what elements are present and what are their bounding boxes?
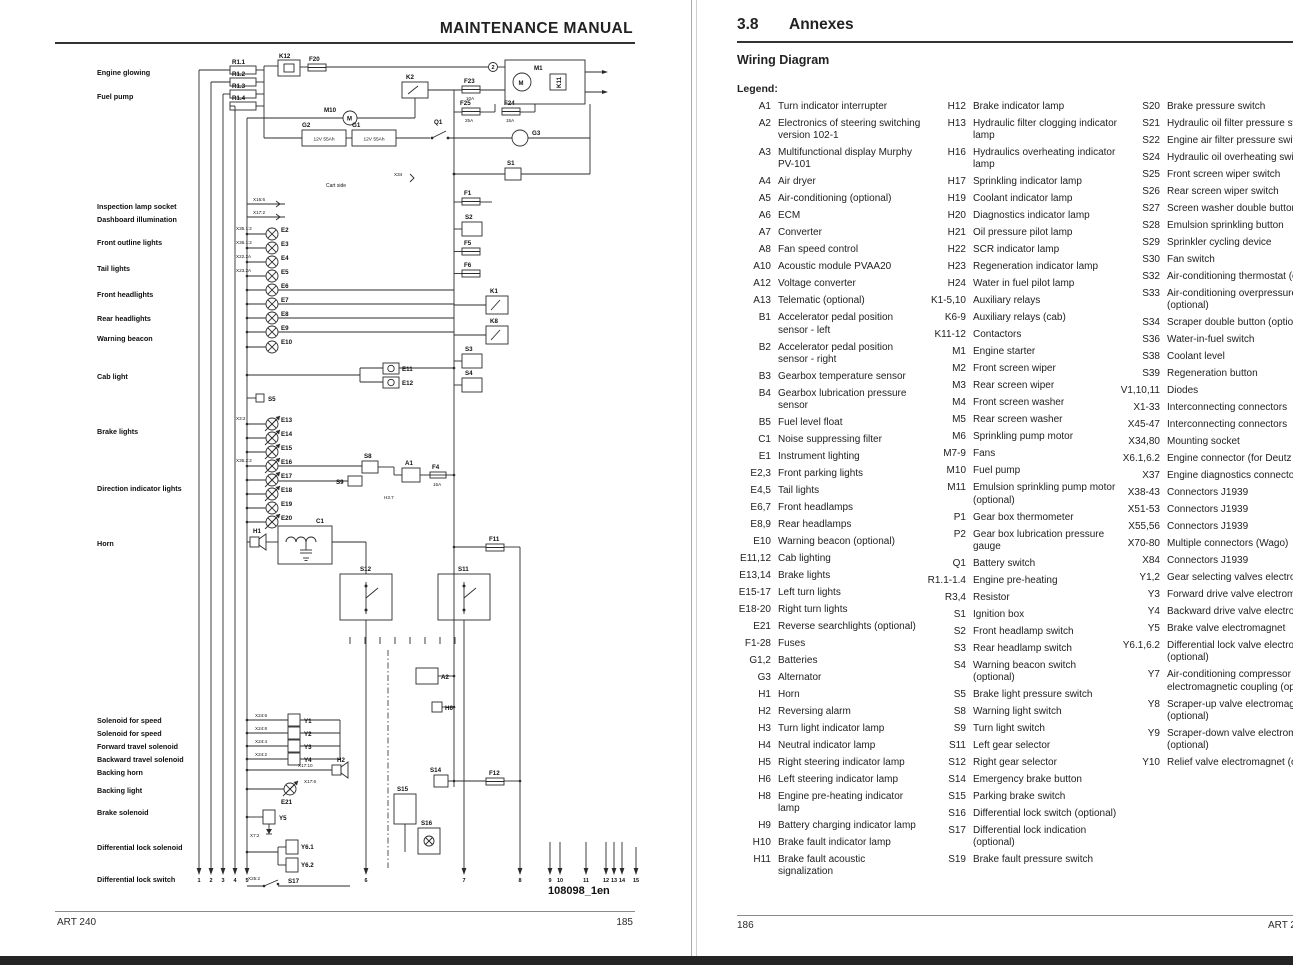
legend-key: E18-20 — [737, 604, 771, 616]
legend-key: H9 — [737, 820, 771, 832]
legend-entry: E10 Warning beacon (optional) — [737, 536, 921, 548]
legend-key: E1 — [737, 451, 771, 463]
diagram-side-labels: Engine glowing Fuel pump Inspection lamp… — [97, 68, 184, 884]
legend-desc: Front parking lights — [778, 468, 921, 480]
svg-text:X24:4: X24:4 — [255, 739, 267, 744]
legend-entry: S33 Air-conditioning overpressure fuse (… — [1120, 288, 1293, 312]
legend-desc: Air dryer — [778, 176, 921, 188]
svg-text:A1: A1 — [405, 460, 413, 467]
legend-entry: S4 Warning beacon switch (optional) — [926, 660, 1118, 684]
legend-entry: A8 Fan speed control — [737, 244, 921, 256]
svg-text:13: 13 — [611, 878, 617, 884]
legend-key: S16 — [926, 808, 966, 820]
legend-desc: Mounting socket — [1167, 436, 1293, 448]
legend-entry: S8 Warning light switch — [926, 706, 1118, 718]
legend-key: H24 — [926, 278, 966, 290]
legend-desc: Batteries — [778, 655, 921, 667]
legend-key: X34,80 — [1120, 436, 1160, 448]
legend-key: H20 — [926, 210, 966, 222]
legend-entry: X37 Engine diagnostics connector — [1120, 470, 1293, 482]
legend-entry: C1 Noise suppressing filter — [737, 434, 921, 446]
svg-text:R1.1: R1.1 — [232, 59, 246, 66]
legend-desc: Connectors J1939 — [1167, 521, 1293, 533]
legend-key: A13 — [737, 295, 771, 307]
legend-key: G3 — [737, 672, 771, 684]
legend-entry: X55,56 Connectors J1939 — [1120, 521, 1293, 533]
svg-text:C1: C1 — [316, 518, 324, 525]
svg-text:M1: M1 — [534, 65, 543, 72]
legend-column-2: H12 Brake indicator lamp H13 Hydraulic f… — [926, 101, 1118, 871]
legend-desc: Front screen washer — [973, 397, 1118, 409]
legend-desc: Connectors J1939 — [1167, 555, 1293, 567]
legend-desc: Rear screen wiper — [973, 380, 1118, 392]
legend-desc: Differential lock valve electromagnets (… — [1167, 640, 1293, 664]
legend-key: H2 — [737, 706, 771, 718]
legend-entry: A1 Turn indicator interrupter — [737, 101, 921, 113]
legend-entry: H11 Brake fault acoustic signalization — [737, 854, 921, 878]
legend-entry: S21 Hydraulic oil filter pressure switch — [1120, 118, 1293, 130]
legend-entry: Y6.1,6.2 Differential lock valve electro… — [1120, 640, 1293, 664]
legend-desc: Accelerator pedal position sensor - left — [778, 312, 921, 336]
legend-key: H10 — [737, 837, 771, 849]
svg-text:Backing horn: Backing horn — [97, 768, 143, 777]
legend-desc: Hydraulic oil filter pressure switch — [1167, 118, 1293, 130]
svg-text:Front headlights: Front headlights — [97, 290, 153, 299]
legend-desc: Screen washer double button — [1167, 203, 1293, 215]
diagram-ref-number: 108098_1en — [548, 885, 610, 897]
svg-text:25A: 25A — [465, 118, 474, 123]
page-number: 186 — [737, 920, 754, 931]
legend-desc: SCR indicator lamp — [973, 244, 1118, 256]
page-gutter-line-2 — [696, 0, 697, 956]
legend-entry: M2 Front screen wiper — [926, 363, 1118, 375]
legend-key: H11 — [737, 854, 771, 878]
svg-text:E19: E19 — [281, 501, 293, 508]
legend-entry: S19 Brake fault pressure switch — [926, 854, 1118, 866]
legend-key: H22 — [926, 244, 966, 256]
legend-entry: M6 Sprinkling pump motor — [926, 431, 1118, 443]
legend-entry: H21 Oil pressure pilot lamp — [926, 227, 1118, 239]
legend-entry: H10 Brake fault indicator lamp — [737, 837, 921, 849]
svg-text:E21: E21 — [281, 799, 293, 806]
legend-entry: S28 Emulsion sprinkling button — [1120, 220, 1293, 232]
legend-key: A5 — [737, 193, 771, 205]
legend-desc: Reverse searchlights (optional) — [778, 621, 921, 633]
legend-desc: Fan speed control — [778, 244, 921, 256]
legend-key: E6,7 — [737, 502, 771, 514]
starter-M1: M M1 K11 — [505, 60, 608, 104]
svg-text:7: 7 — [462, 878, 465, 884]
legend-entry: H13 Hydraulic filter clogging indicator … — [926, 118, 1118, 142]
legend-entry: S20 Brake pressure switch — [1120, 101, 1293, 113]
legend-entry: S12 Right gear selector — [926, 757, 1118, 769]
svg-text:11: 11 — [583, 878, 589, 884]
legend-key: E21 — [737, 621, 771, 633]
legend-desc: Gear selecting valves electromagnets — [1167, 572, 1293, 584]
svg-text:2: 2 — [209, 878, 212, 884]
legend-key: H8 — [737, 791, 771, 815]
legend-entry: S15 Parking brake switch — [926, 791, 1118, 803]
svg-text:X7:2: X7:2 — [250, 833, 260, 838]
legend-key: S26 — [1120, 186, 1160, 198]
svg-text:5: 5 — [245, 878, 248, 884]
legend-key: S34 — [1120, 317, 1160, 329]
svg-text:E7: E7 — [281, 297, 289, 304]
legend-key: X1-33 — [1120, 402, 1160, 414]
legend-key: S19 — [926, 854, 966, 866]
legend-desc: Interconnecting connectors — [1167, 419, 1293, 431]
legend-desc: Brake fault indicator lamp — [778, 837, 921, 849]
legend-desc: Scraper-up valve electromagnet (optional… — [1167, 699, 1293, 723]
legend-desc: Interconnecting connectors — [1167, 402, 1293, 414]
legend-key: M6 — [926, 431, 966, 443]
legend-entry: H12 Brake indicator lamp — [926, 101, 1118, 113]
legend-entry: X1-33 Interconnecting connectors — [1120, 402, 1293, 414]
legend-desc: Telematic (optional) — [778, 295, 921, 307]
legend-key: X51-53 — [1120, 504, 1160, 516]
legend-key: M3 — [926, 380, 966, 392]
legend-entry: S5 Brake light pressure switch — [926, 689, 1118, 701]
svg-text:G2: G2 — [302, 122, 311, 129]
legend-key: B3 — [737, 371, 771, 383]
legend-desc: Sprinkling pump motor — [973, 431, 1118, 443]
legend-entry: X38-43 Connectors J1939 — [1120, 487, 1293, 499]
legend-desc: Water-in-fuel switch — [1167, 334, 1293, 346]
legend-key: S30 — [1120, 254, 1160, 266]
legend-entry: S27 Screen washer double button — [1120, 203, 1293, 215]
svg-text:F25: F25 — [460, 100, 471, 107]
legend-entry: S9 Turn light switch — [926, 723, 1118, 735]
legend-key: S27 — [1120, 203, 1160, 215]
svg-text:10: 10 — [557, 878, 563, 884]
legend-entry: S11 Left gear selector — [926, 740, 1118, 752]
legend-desc: Fan switch — [1167, 254, 1293, 266]
page-gutter-line — [691, 0, 692, 956]
svg-text:H3.7: H3.7 — [384, 495, 394, 500]
legend-key: S1 — [926, 609, 966, 621]
legend-key: H17 — [926, 176, 966, 188]
svg-text:G1: G1 — [352, 122, 361, 129]
legend-key: R1.1-1.4 — [926, 575, 966, 587]
legend-key: S14 — [926, 774, 966, 786]
legend-desc: Air-conditioning thermostat (optional) — [1167, 271, 1293, 283]
legend-desc: Fuses — [778, 638, 921, 650]
legend-entry: H24 Water in fuel pilot lamp — [926, 278, 1118, 290]
svg-text:K1: K1 — [490, 288, 498, 295]
legend-entry: H23 Regeneration indicator lamp — [926, 261, 1118, 273]
legend-key: S29 — [1120, 237, 1160, 249]
legend-key: H23 — [926, 261, 966, 273]
svg-text:S16: S16 — [421, 820, 433, 827]
legend-desc: Engine pre-heating — [973, 575, 1118, 587]
svg-text:E6: E6 — [281, 283, 289, 290]
legend-entry: S30 Fan switch — [1120, 254, 1293, 266]
svg-text:Front outline lights: Front outline lights — [97, 238, 162, 247]
legend-key: Y5 — [1120, 623, 1160, 635]
svg-text:E13: E13 — [281, 417, 293, 424]
legend-entry: X70-80 Multiple connectors (Wago) — [1120, 538, 1293, 550]
legend-entry: Y4 Backward drive valve electromagnet — [1120, 606, 1293, 618]
legend-entry: S14 Emergency brake button — [926, 774, 1118, 786]
legend-key: X38-43 — [1120, 487, 1160, 499]
svg-text:Backing light: Backing light — [97, 786, 143, 795]
svg-text:E11: E11 — [402, 366, 413, 373]
legend-desc: Brake fault acoustic signalization — [778, 854, 921, 878]
legend-desc: Air-conditioning compressor electromagne… — [1167, 669, 1293, 693]
legend-entry: M11 Emulsion sprinkling pump motor (opti… — [926, 482, 1118, 506]
svg-text:Horn: Horn — [97, 539, 114, 548]
legend-entry: A6 ECM — [737, 210, 921, 222]
legend-key: S12 — [926, 757, 966, 769]
legend-entry: S36 Water-in-fuel switch — [1120, 334, 1293, 346]
footer-rule — [737, 915, 1293, 916]
legend-desc: Emergency brake button — [973, 774, 1118, 786]
legend-desc: Parking brake switch — [973, 791, 1118, 803]
svg-text:E12: E12 — [402, 380, 414, 387]
legend-key: A1 — [737, 101, 771, 113]
legend-key: H6 — [737, 774, 771, 786]
svg-text:E15: E15 — [281, 445, 293, 452]
legend-key: S5 — [926, 689, 966, 701]
legend-desc: Engine air filter pressure switch — [1167, 135, 1293, 147]
legend-desc: Resistor — [973, 592, 1118, 604]
svg-text:Y6.1: Y6.1 — [301, 844, 314, 851]
legend-key: S25 — [1120, 169, 1160, 181]
legend-entry: X84 Connectors J1939 — [1120, 555, 1293, 567]
legend-entry: Y9 Scraper-down valve electromagnet (opt… — [1120, 728, 1293, 752]
legend-key: E8,9 — [737, 519, 771, 531]
svg-text:S1: S1 — [507, 160, 515, 167]
legend-desc: Battery switch — [973, 558, 1118, 570]
legend-entry: X45-47 Interconnecting connectors — [1120, 419, 1293, 431]
legend-desc: Electronics of steering switching versio… — [778, 118, 921, 142]
legend-key: Y10 — [1120, 757, 1160, 769]
legend-desc: Left turn lights — [778, 587, 921, 599]
svg-text:H1: H1 — [253, 528, 261, 535]
svg-text:X17:2: X17:2 — [253, 210, 265, 215]
svg-text:S2: S2 — [465, 214, 473, 221]
legend-entry: E4,5 Tail lights — [737, 485, 921, 497]
legend-key: S28 — [1120, 220, 1160, 232]
controller-A2: A2 H6 — [416, 668, 455, 712]
legend-entry: B2 Accelerator pedal position sensor - r… — [737, 342, 921, 366]
legend-entry: H5 Right steering indicator lamp — [737, 757, 921, 769]
legend-key: S39 — [1120, 368, 1160, 380]
legend-desc: Backward drive valve electromagnet — [1167, 606, 1293, 618]
legend-key: Y3 — [1120, 589, 1160, 601]
legend-key: M11 — [926, 482, 966, 506]
legend-key: X70-80 — [1120, 538, 1160, 550]
legend-desc: Fans — [973, 448, 1118, 460]
svg-text:12V 55Ah: 12V 55Ah — [363, 137, 384, 143]
legend-desc: Engine diagnostics connector — [1167, 470, 1293, 482]
legend-desc: Water in fuel pilot lamp — [973, 278, 1118, 290]
legend-key: S9 — [926, 723, 966, 735]
legend-key: M7-9 — [926, 448, 966, 460]
svg-text:14: 14 — [619, 878, 626, 884]
page-number: 185 — [616, 917, 633, 928]
legend-key: Y8 — [1120, 699, 1160, 723]
svg-text:Backward travel solenoid: Backward travel solenoid — [97, 755, 184, 764]
legend-entry: Y10 Relief valve electromagnet (optional… — [1120, 757, 1293, 769]
legend-desc: Emulsion sprinkling pump motor (optional… — [973, 482, 1118, 506]
svg-text:H6: H6 — [445, 705, 453, 712]
svg-text:S8: S8 — [364, 453, 372, 460]
svg-text:Rear headlights: Rear headlights — [97, 314, 151, 323]
svg-text:X25:2: X25:2 — [248, 876, 260, 881]
gear-selectors: S12 S11 — [340, 566, 490, 644]
legend-key: A2 — [737, 118, 771, 142]
legend-entry: M1 Engine starter — [926, 346, 1118, 358]
section-number: 3.8 — [737, 16, 789, 34]
legend-entry: S26 Rear screen wiper switch — [1120, 186, 1293, 198]
legend-key: E11,12 — [737, 553, 771, 565]
svg-text:K11: K11 — [556, 76, 563, 88]
legend-key: H16 — [926, 147, 966, 171]
relay-K12: K12 F20 2 — [278, 53, 505, 76]
legend-label: Legend: — [737, 83, 778, 95]
legend-key: S2 — [926, 626, 966, 638]
svg-text:E8: E8 — [281, 311, 289, 318]
legend-entry: S3 Rear headlamp switch — [926, 643, 1118, 655]
legend-desc: Horn — [778, 689, 921, 701]
legend-entry: B3 Gearbox temperature sensor — [737, 371, 921, 383]
svg-text:F11: F11 — [489, 536, 500, 543]
legend-key: B5 — [737, 417, 771, 429]
svg-text:S11: S11 — [458, 566, 469, 573]
legend-key: F1-28 — [737, 638, 771, 650]
svg-text:M10: M10 — [324, 107, 337, 114]
svg-text:R1.2: R1.2 — [232, 71, 246, 78]
page-title: MAINTENANCE MANUAL — [440, 20, 633, 38]
legend-key: A12 — [737, 278, 771, 290]
legend-key: E15-17 — [737, 587, 771, 599]
svg-text:X17:10: X17:10 — [298, 763, 313, 768]
svg-text:Solenoid for speed: Solenoid for speed — [97, 716, 162, 725]
legend-key: V1,10,11 — [1120, 385, 1160, 397]
legend-column-3: S20 Brake pressure switch S21 Hydraulic … — [1120, 101, 1293, 774]
legend-desc: Diodes — [1167, 385, 1293, 397]
legend-desc: Forward drive valve electromagnet — [1167, 589, 1293, 601]
legend-desc: Brake light pressure switch — [973, 689, 1118, 701]
legend-entry: A13 Telematic (optional) — [737, 295, 921, 307]
svg-text:Y3: Y3 — [304, 744, 312, 751]
legend-entry: H9 Battery charging indicator lamp — [737, 820, 921, 832]
legend-key: A10 — [737, 261, 771, 273]
legend-entry: H4 Neutral indicator lamp — [737, 740, 921, 752]
legend-key: H3 — [737, 723, 771, 735]
legend-key: H4 — [737, 740, 771, 752]
legend-desc: Multifunctional display Murphy PV-101 — [778, 147, 921, 171]
legend-entry: E13,14 Brake lights — [737, 570, 921, 582]
legend-desc: Coolant level — [1167, 351, 1293, 363]
svg-text:E10: E10 — [281, 339, 293, 346]
legend-key: M5 — [926, 414, 966, 426]
legend-desc: Ignition box — [973, 609, 1118, 621]
svg-text:X35.2:2: X35.2:2 — [236, 458, 252, 463]
legend-desc: Regeneration indicator lamp — [973, 261, 1118, 273]
legend-desc: Scraper double button (optional) — [1167, 317, 1293, 329]
legend-desc: Contactors — [973, 329, 1118, 341]
legend-desc: Hydraulics overheating indicator lamp — [973, 147, 1118, 171]
legend-entry: K11-12 Contactors — [926, 329, 1118, 341]
legend-entry: X34,80 Mounting socket — [1120, 436, 1293, 448]
legend-key: E2,3 — [737, 468, 771, 480]
lamps-E13-E20: E13 E14 E15 E16 E17 E18 E19 E20 X3:2 X35… — [236, 416, 293, 529]
svg-text:F12: F12 — [489, 770, 500, 777]
legend-desc: Converter — [778, 227, 921, 239]
legend-key: Y1,2 — [1120, 572, 1160, 584]
wiring-diagram-schematic: Engine glowing Fuel pump Inspection lamp… — [50, 52, 650, 897]
svg-text:8: 8 — [518, 878, 521, 884]
svg-text:X36.1:2: X36.1:2 — [236, 240, 252, 245]
svg-text:F1: F1 — [464, 190, 472, 197]
wires-bus — [199, 70, 520, 868]
svg-text:K2: K2 — [406, 74, 414, 81]
legend-key: Y6.1,6.2 — [1120, 640, 1160, 664]
legend-entry: S25 Front screen wiper switch — [1120, 169, 1293, 181]
legend-desc: Connectors J1939 — [1167, 487, 1293, 499]
legend-key: Y7 — [1120, 669, 1160, 693]
legend-key: P1 — [926, 512, 966, 524]
legend-key: A4 — [737, 176, 771, 188]
manual-spread: { "left_page": { "header_title": "MAINTE… — [0, 0, 1293, 965]
svg-text:Y6.2: Y6.2 — [301, 862, 314, 869]
legend-entry: V1,10,11 Diodes — [1120, 385, 1293, 397]
legend-key: G1,2 — [737, 655, 771, 667]
svg-text:S9: S9 — [336, 479, 344, 486]
legend-entry: E11,12 Cab lighting — [737, 553, 921, 565]
svg-text:E3: E3 — [281, 241, 289, 248]
legend-desc: Engine pre-heating indicator lamp — [778, 791, 921, 815]
legend-entry: X51-53 Connectors J1939 — [1120, 504, 1293, 516]
legend-desc: Oil pressure pilot lamp — [973, 227, 1118, 239]
legend-key: S38 — [1120, 351, 1160, 363]
legend-entry: S29 Sprinkler cycling device — [1120, 237, 1293, 249]
svg-text:E20: E20 — [281, 515, 293, 522]
legend-key: S22 — [1120, 135, 1160, 147]
legend-desc: Differential lock switch (optional) — [973, 808, 1118, 820]
legend-desc: Rear screen washer — [973, 414, 1118, 426]
legend-entry: X6.1,6.2 Engine connector (for Deutz X23… — [1120, 453, 1293, 465]
legend-entry: B4 Gearbox lubrication pressure sensor — [737, 388, 921, 412]
legend-entry: S38 Coolant level — [1120, 351, 1293, 363]
legend-entry: H20 Diagnostics indicator lamp — [926, 210, 1118, 222]
legend-desc: Warning beacon switch (optional) — [973, 660, 1118, 684]
legend-desc: Brake valve electromagnet — [1167, 623, 1293, 635]
legend-entry: S17 Differential lock indication (option… — [926, 825, 1118, 849]
legend-entry: E15-17 Left turn lights — [737, 587, 921, 599]
legend-entry: Q1 Battery switch — [926, 558, 1118, 570]
legend-desc: Front headlamps — [778, 502, 921, 514]
legend-entry: M3 Rear screen wiper — [926, 380, 1118, 392]
legend-key: S36 — [1120, 334, 1160, 346]
legend-key: K11-12 — [926, 329, 966, 341]
legend-desc: Brake fault pressure switch — [973, 854, 1118, 866]
svg-text:S3: S3 — [465, 346, 473, 353]
legend-desc: Fuel pump — [973, 465, 1118, 477]
svg-text:Cart side: Cart side — [326, 183, 346, 189]
svg-text:X23.2A: X23.2A — [236, 268, 252, 273]
legend-entry: H22 SCR indicator lamp — [926, 244, 1118, 256]
legend-entry: H1 Horn — [737, 689, 921, 701]
svg-text:Direction indicator lights: Direction indicator lights — [97, 484, 182, 493]
legend-entry: H16 Hydraulics overheating indicator lam… — [926, 147, 1118, 171]
svg-text:Y1: Y1 — [304, 718, 312, 725]
legend-entry: M5 Rear screen washer — [926, 414, 1118, 426]
legend-desc: Coolant indicator lamp — [973, 193, 1118, 205]
legend-desc: Right steering indicator lamp — [778, 757, 921, 769]
